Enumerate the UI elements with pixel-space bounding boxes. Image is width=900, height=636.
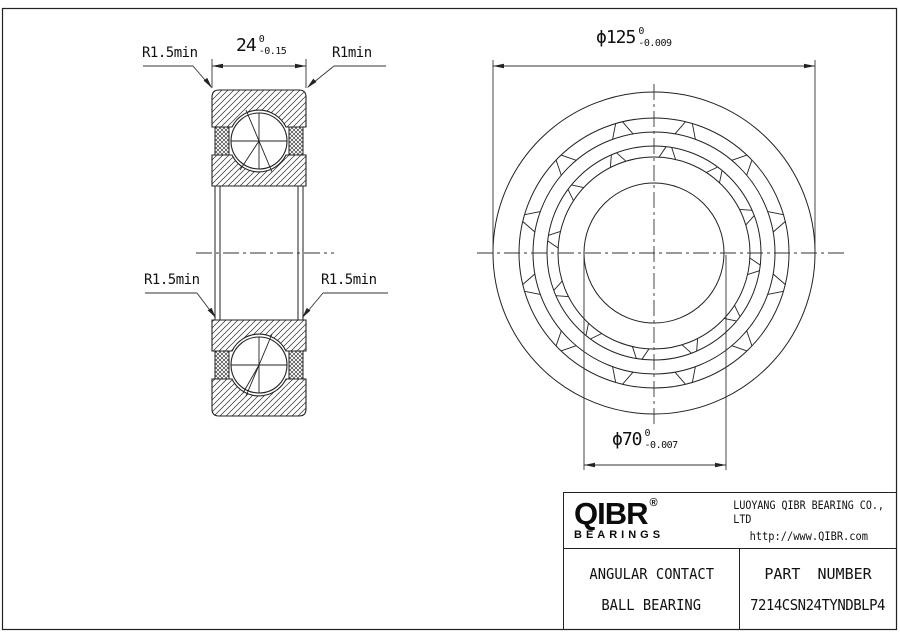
registered-trademark-icon: ® (650, 498, 657, 509)
company-info: LUOYANG QIBR BEARING CO., LTD http://www… (722, 498, 896, 543)
od-value: 125 (606, 28, 636, 48)
product-type-line2: BALL BEARING (602, 596, 702, 614)
od-tolerance: 0 -0.009 (638, 26, 671, 50)
brand-subtitle: BEARINGS (574, 529, 722, 541)
od-tol-lower: -0.009 (638, 38, 671, 50)
front-view (477, 84, 846, 428)
bore-tol-upper: 0 (645, 428, 651, 440)
part-number-label: PART NUMBER (764, 565, 871, 583)
width-tol-lower: -0.15 (259, 46, 287, 58)
company-name: LUOYANG QIBR BEARING CO., LTD (733, 498, 884, 526)
bore-prefix: ϕ (612, 430, 622, 450)
radius-callout-bottom-right: R1.5min (321, 272, 377, 288)
title-block-header-row: QIBR ® BEARINGS LUOYANG QIBR BEARING CO.… (564, 493, 896, 549)
part-number-cell: PART NUMBER 7214CSN24TYNDBLP4 (739, 549, 896, 629)
width-value: 24 (236, 36, 256, 56)
bore-tolerance: 0 -0.007 (645, 428, 678, 452)
bore-tol-lower: -0.007 (645, 440, 678, 452)
width-tol-upper: 0 (259, 34, 265, 46)
width-tolerance: 0 -0.15 (259, 34, 287, 58)
brand-name: QIBR (574, 500, 648, 528)
product-type-line1: ANGULAR CONTACT (589, 565, 714, 583)
radius-callout-top-left: R1.5min (142, 45, 198, 61)
cross-section-view (196, 90, 334, 416)
od-tol-upper: 0 (638, 26, 644, 38)
brand-logo: QIBR ® BEARINGS (564, 500, 722, 541)
title-block: QIBR ® BEARINGS LUOYANG QIBR BEARING CO.… (563, 492, 897, 630)
part-number-value: 7214CSN24TYNDBLP4 (751, 596, 886, 614)
radius-callout-bottom-left: R1.5min (144, 272, 200, 288)
title-block-lower-row: ANGULAR CONTACT BALL BEARING PART NUMBER… (564, 549, 896, 629)
bore-value: 70 (622, 430, 642, 450)
engineering-drawing-page: R1.5min R1min R1.5min R1.5min 24 0 -0.15… (0, 0, 900, 636)
od-prefix: ϕ (596, 28, 606, 48)
width-dimension-label: 24 0 -0.15 (236, 36, 286, 58)
radius-callout-top-right: R1min (332, 45, 372, 61)
outer-diameter-label: ϕ 125 0 -0.009 (596, 28, 671, 50)
company-website: http://www.QIBR.com (750, 529, 868, 543)
bore-diameter-label: ϕ 70 0 -0.007 (612, 430, 678, 452)
product-type-cell: ANGULAR CONTACT BALL BEARING (564, 549, 739, 629)
